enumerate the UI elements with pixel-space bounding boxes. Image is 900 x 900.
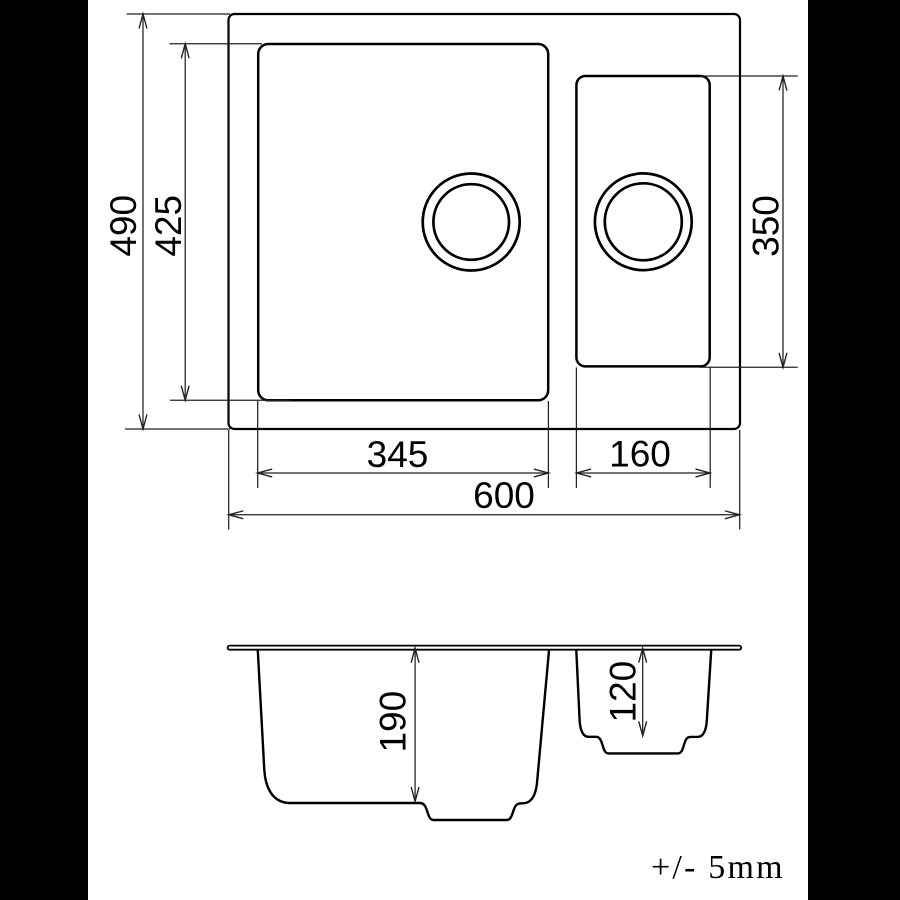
- svg-text:120: 120: [602, 661, 643, 723]
- svg-text:490: 490: [103, 195, 144, 257]
- svg-text:600: 600: [473, 475, 535, 516]
- svg-text:345: 345: [367, 434, 429, 475]
- svg-text:160: 160: [609, 434, 671, 475]
- svg-text:425: 425: [148, 195, 189, 257]
- svg-text:350: 350: [746, 195, 787, 257]
- svg-text:190: 190: [372, 691, 413, 753]
- svg-text:+/- 5mm: +/- 5mm: [651, 849, 785, 886]
